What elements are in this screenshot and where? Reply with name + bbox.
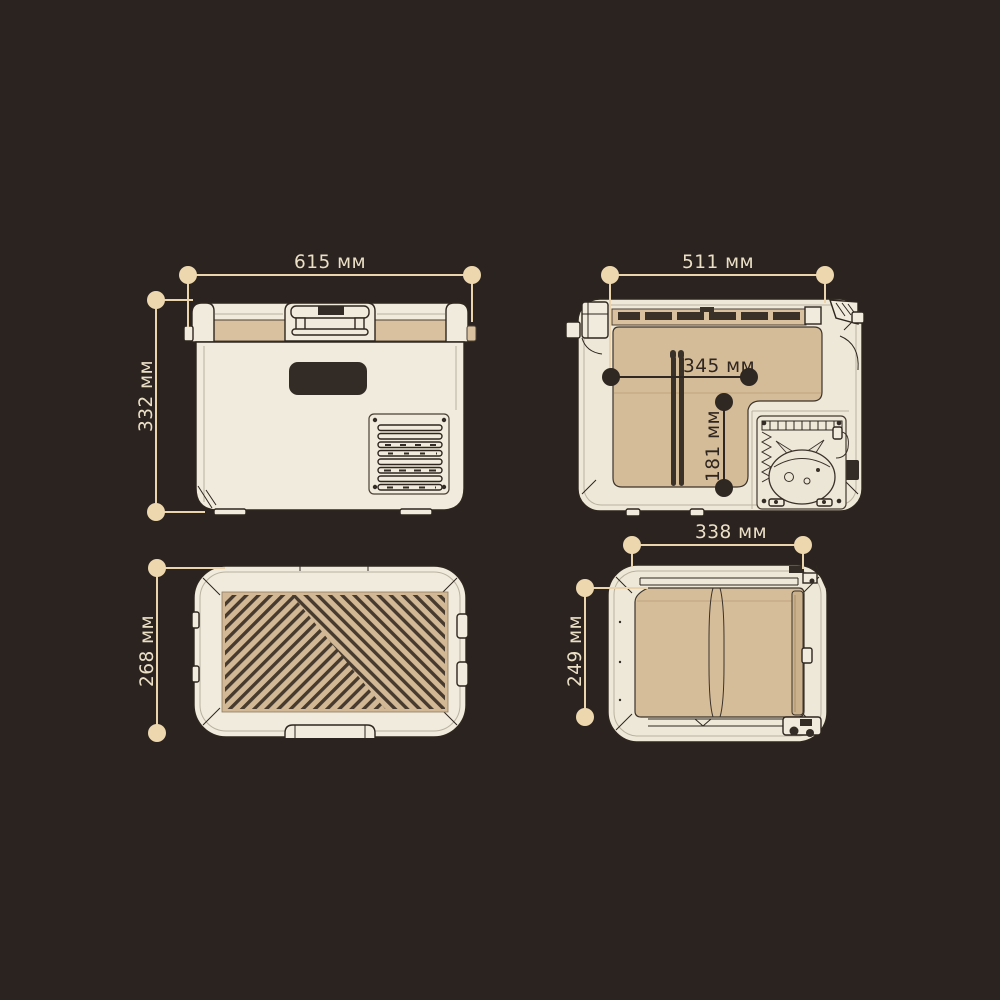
top-left-hinge: [582, 302, 608, 338]
top-left-latch: [566, 322, 580, 338]
lid-handle-recess: [285, 725, 375, 738]
front-width-label: 615 мм: [294, 252, 366, 273]
side-bottom-hinge: [783, 717, 821, 737]
lid-right-latch-2: [457, 662, 468, 686]
lid-left-nub-1: [192, 612, 199, 628]
lid-left-cap: [192, 303, 214, 342]
lid-tread-pattern: [222, 592, 448, 712]
power-socket: [845, 460, 859, 480]
top-foot-right: [690, 509, 704, 516]
top-width-label: 511 мм: [682, 252, 754, 273]
lid-right-latch: [467, 326, 476, 341]
front-badge: [289, 362, 367, 395]
handle-grip: [318, 306, 344, 315]
lid-right-latch-1: [457, 614, 468, 638]
side-view: [608, 565, 827, 742]
lid-left-nub-2: [192, 666, 199, 682]
lid-top-view: [192, 566, 468, 738]
lid-depth-label: 268 мм: [137, 615, 158, 687]
lid-left-latch: [184, 326, 193, 341]
top-inner-width-label: 345 мм: [683, 356, 755, 377]
lid-gasket-strip: [612, 307, 821, 325]
vent-grille: [369, 414, 449, 494]
diagram-svg: 615 мм 332 мм 511 мм 345 мм 181 мм 268 м…: [0, 0, 1000, 1000]
fridge-dimensions-diagram: 615 мм 332 мм 511 мм 345 мм 181 мм 268 м…: [0, 0, 1000, 1000]
front-height-label: 332 мм: [136, 360, 157, 432]
front-handle: [285, 303, 375, 341]
side-depth-label: 338 мм: [695, 522, 767, 543]
side-panel: [635, 588, 804, 717]
top-inner-depth-label: 181 мм: [703, 410, 724, 482]
front-foot-right: [400, 509, 432, 515]
compressor: [757, 416, 848, 509]
lid-right-cap: [446, 303, 468, 342]
top-foot-left: [626, 509, 640, 516]
front-view: [184, 303, 476, 515]
dim-side-depth: 338 мм: [623, 522, 812, 569]
side-panel-height-label: 249 мм: [565, 615, 586, 687]
side-right-tab: [802, 648, 812, 663]
front-foot-left: [214, 509, 246, 515]
